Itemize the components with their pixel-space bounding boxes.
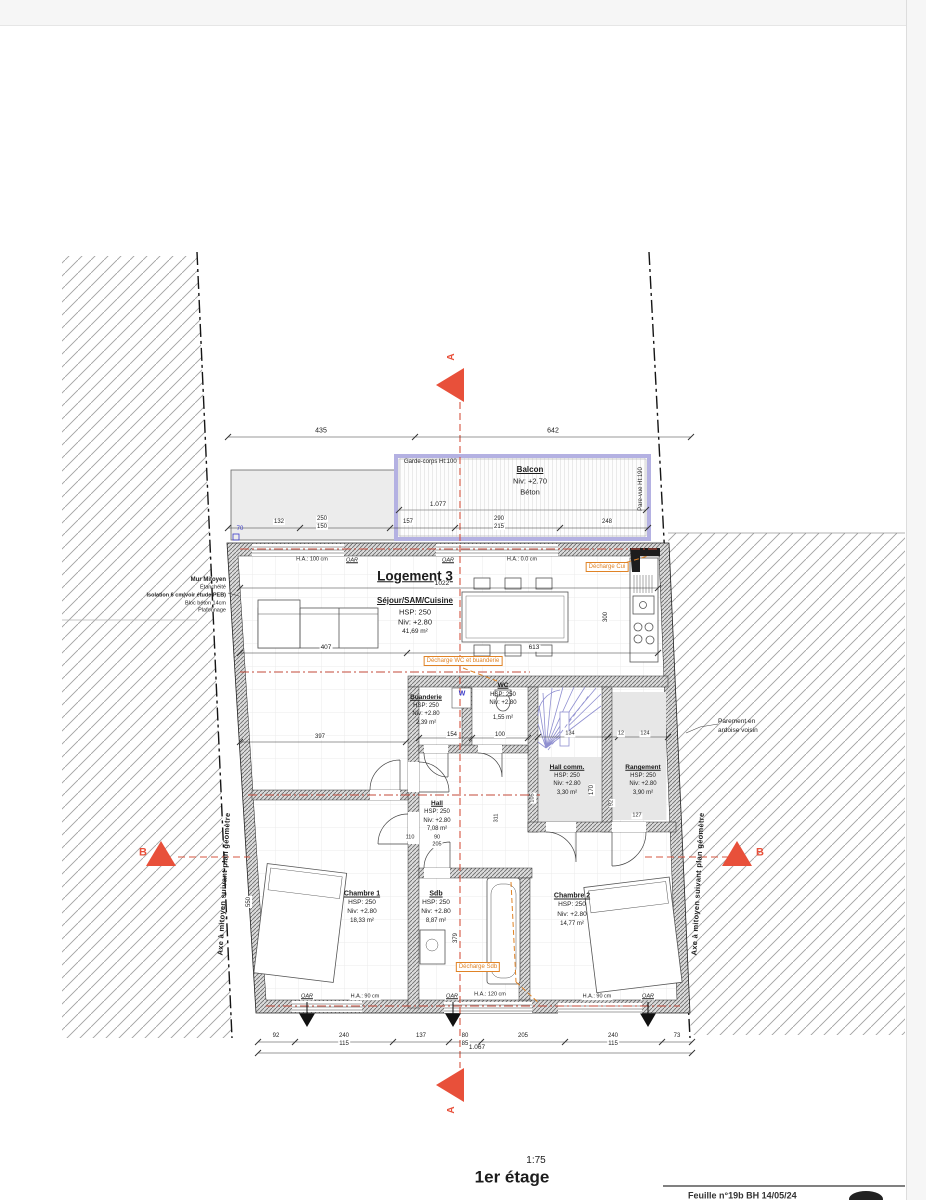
room-level: Niv: +2.80: [398, 618, 432, 626]
chair: [474, 645, 490, 656]
sill-height-label: H.A.: 100 cm: [295, 557, 329, 563]
room-hsp: HSP: 250: [630, 773, 656, 779]
room-name: WC: [498, 683, 509, 690]
room-area: 14,77 m²: [560, 921, 584, 927]
neighbor-note: ardoise voisin: [718, 728, 758, 735]
dim-label: 90: [433, 835, 441, 841]
burner: [634, 623, 642, 631]
company-logo-icon: [849, 1191, 883, 1200]
floor-plan-sheet: 435 642 Garde-corps Ht:100 Balcon Niv: +…: [0, 0, 926, 1200]
balcony-level: Niv: +2.70: [513, 477, 547, 485]
section-marker-a-label: A: [447, 353, 457, 360]
dim-label: 240: [607, 1033, 619, 1039]
dim-label: 92: [609, 799, 615, 807]
dim-label: 73: [673, 1033, 682, 1039]
room-area: 7,08 m²: [427, 826, 447, 832]
room-hsp: HSP: 250: [399, 608, 431, 616]
room-hsp: HSP: 250: [558, 902, 586, 909]
room-level: Niv: +2.80: [489, 700, 516, 706]
room-level: Niv: +2.80: [421, 909, 450, 916]
dim-label: 397: [314, 734, 326, 740]
dim-label: 100: [494, 732, 506, 738]
sill-height-label: H.A.: 0.0 cm: [506, 557, 538, 563]
plumbing-label: Décharge WC et buanderie: [424, 656, 503, 666]
rangement-floor: [612, 692, 666, 820]
room-name: Rangement: [625, 765, 660, 772]
sheet-footer: Feuille n°19b BH 14/05/24: [688, 1192, 797, 1200]
floor-plan-drawing: [0, 0, 926, 1200]
dim-label: 379: [453, 932, 459, 944]
dim-label: 1022: [434, 581, 450, 588]
party-wall-note: Isolation 6 cm(voir étude PEB): [147, 593, 226, 599]
washer-label: W: [459, 691, 466, 698]
screen-note: Pare-vue Ht:190: [638, 467, 644, 511]
room-level: Niv: +2.80: [423, 818, 450, 824]
dim-label: 110: [405, 835, 416, 841]
oar-label: OAR: [300, 994, 314, 1000]
room-hsp: HSP: 250: [490, 692, 516, 698]
dim-label: 205: [431, 842, 442, 848]
dim-label: 115: [607, 1041, 619, 1047]
party-wall-note: Bloc béton 14cm: [185, 601, 226, 607]
dim-label: 407: [320, 645, 333, 652]
dim-label: 154: [446, 732, 458, 738]
burner: [645, 623, 653, 631]
dim-label: 1.077: [429, 502, 447, 509]
room-name: Buanderie: [410, 695, 442, 702]
dim-label: 132: [273, 519, 285, 525]
room-area: 18,33 m²: [350, 918, 374, 924]
room-area: 3,90 m²: [633, 790, 653, 796]
dim-label: 240: [338, 1033, 350, 1039]
dim-label: 205: [517, 1033, 529, 1039]
room-hsp: HSP: 250: [413, 703, 439, 709]
bed-chambre2: [584, 877, 682, 993]
room-area: 41,69 m²: [402, 629, 428, 636]
room-level: Niv: +2.80: [553, 781, 580, 787]
dim-label: 311: [494, 813, 500, 824]
dim-label: 435: [314, 428, 328, 435]
dim-label: 300: [603, 611, 609, 623]
right-margin-strip: [906, 0, 926, 1200]
balcony-material: Béton: [520, 488, 540, 496]
dim-label: 170: [589, 784, 595, 796]
chair: [536, 578, 552, 589]
section-marker-a-label: A: [447, 1106, 457, 1113]
room-area: 3,30 m²: [557, 790, 577, 796]
sill-height-label: H.A.: 90 cm: [350, 994, 381, 1000]
burner: [634, 635, 642, 643]
dim-label: 550: [246, 896, 252, 908]
room-hsp: HSP: 250: [348, 900, 376, 907]
neighbor-note: Parement en: [718, 719, 755, 726]
room-level: Niv: +2.80: [629, 781, 656, 787]
section-marker-b-label: B: [139, 848, 147, 859]
room-level: Niv: +2.80: [347, 909, 376, 916]
room-name: Chambre 1: [344, 891, 380, 898]
burner: [646, 636, 654, 644]
dim-label: 105: [530, 792, 536, 803]
section-marker-a-bottom-icon: [436, 1068, 464, 1102]
chair: [505, 578, 521, 589]
section-marker-a-top-icon: [436, 368, 464, 402]
roof-terrace: [231, 470, 395, 540]
party-wall-note: Plafonnage: [198, 608, 226, 614]
dim-label: 124: [639, 731, 650, 737]
dim-label: 127: [631, 813, 642, 819]
dim-label: 80: [461, 1033, 470, 1039]
room-hsp: HSP: 250: [422, 900, 450, 907]
dim-label: 290: [493, 516, 505, 522]
dim-label: 613: [528, 645, 541, 652]
party-wall-note: Étanchéité: [200, 585, 226, 591]
room-name: Hall: [431, 801, 443, 808]
room-name: Sdb: [429, 891, 442, 898]
dim-label: 92: [272, 1033, 281, 1039]
dim-label: 134: [564, 731, 575, 737]
chair: [505, 645, 521, 656]
oar-label: OAR: [345, 558, 359, 564]
dim-label: 12: [617, 731, 625, 737]
sill-height-label: H.A.: 120 cm: [473, 992, 507, 998]
room-area: 1,55 m²: [493, 715, 513, 721]
chair: [474, 578, 490, 589]
oar-label: OAR: [441, 558, 455, 564]
sofa-chaise: [258, 600, 300, 648]
dim-label: 115: [338, 1041, 350, 1047]
balcony-name: Balcon: [517, 466, 544, 474]
room-level: Niv: +2.80: [557, 912, 586, 919]
plumbing-label: Décharge Cui: [586, 562, 629, 572]
dim-label: 137: [415, 1033, 427, 1039]
room-hsp: HSP: 250: [424, 809, 450, 815]
room-hsp: HSP: 250: [554, 773, 580, 779]
dim-label: 250: [316, 516, 328, 522]
oar-label: OAR: [445, 994, 459, 1000]
room-area: 8,87 m²: [426, 918, 446, 924]
plan-title: 1er étage: [475, 1169, 550, 1186]
sill-height-label: H.A.: 90 cm: [582, 994, 613, 1000]
dim-label: 1.067: [468, 1045, 486, 1052]
room-level: Niv: +2.80: [412, 711, 439, 717]
room-name: Séjour/SAM/Cuisine: [377, 597, 453, 605]
plan-scale: 1:75: [526, 1156, 545, 1166]
bed-chambre1: [254, 864, 347, 983]
dim-label: 642: [546, 428, 560, 435]
party-wall-note: Mur Mitoyen: [191, 577, 226, 583]
railing-note: Garde-corps Ht:100: [404, 459, 457, 465]
plumbing-label: Décharge Sdb: [456, 962, 500, 972]
dim-label: 150: [316, 524, 328, 530]
dim-label: 157: [402, 519, 414, 525]
room-name: Chambre 2: [554, 893, 590, 900]
room-name: Hall comm.: [550, 765, 585, 772]
survey-point-label: 70: [237, 526, 244, 532]
room-area: 2,39 m²: [416, 720, 436, 726]
top-margin-strip: [0, 0, 926, 26]
dim-label: 248: [601, 519, 613, 525]
section-marker-b-label: B: [756, 848, 764, 859]
oar-label: OAR: [641, 994, 655, 1000]
dim-label: 215: [493, 524, 505, 530]
